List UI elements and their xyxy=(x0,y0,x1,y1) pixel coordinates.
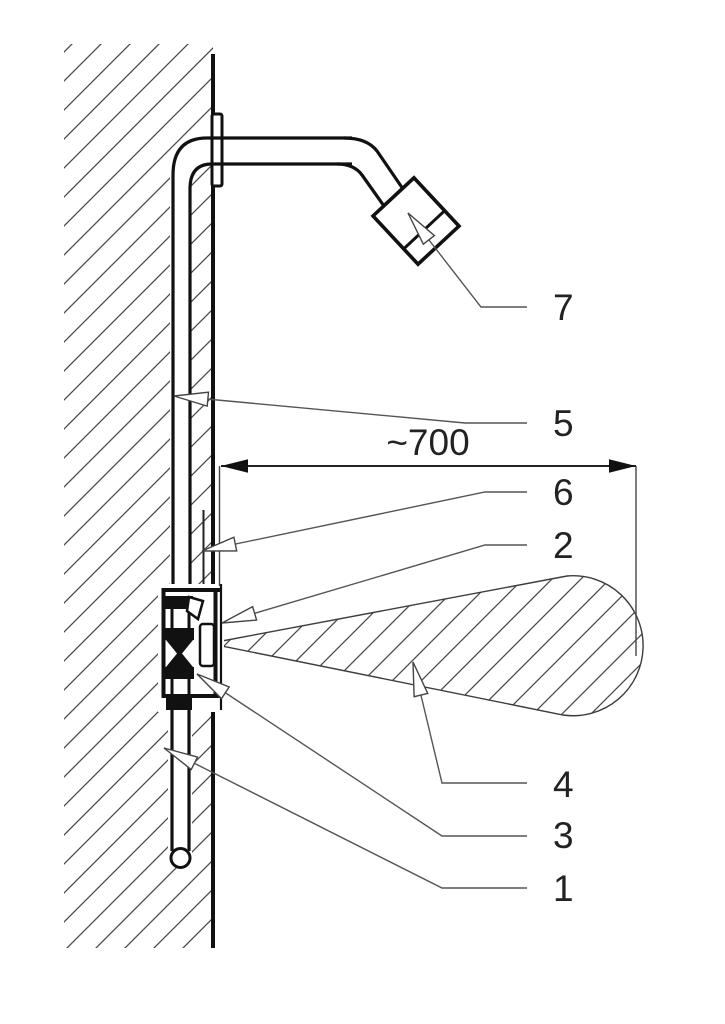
arm-outer-line xyxy=(344,138,403,189)
callout-label-2: 2 xyxy=(553,525,574,566)
callout-label-6: 6 xyxy=(553,472,574,513)
callout-label-7: 7 xyxy=(553,287,574,328)
leader-line-5 xyxy=(174,396,527,423)
arm-inner-line xyxy=(337,164,384,206)
valve-connector-nut-bottom xyxy=(166,698,192,710)
supply-pipe-end-cap xyxy=(171,849,190,868)
callout-label-3: 3 xyxy=(553,815,574,856)
callout-label-4: 4 xyxy=(553,764,574,805)
valve-assembly xyxy=(158,584,224,712)
callout-label-1: 1 xyxy=(553,868,574,909)
drawing-page: ~700 7 5 6 2 4 3 1 xyxy=(0,0,725,1024)
valve-union-nut-low xyxy=(163,667,194,679)
valve-union-nut-mid xyxy=(163,628,194,640)
dimension-text: ~700 xyxy=(386,422,469,463)
shower-installation-diagram: ~700 7 5 6 2 4 3 1 xyxy=(0,0,725,1024)
callout-label-5: 5 xyxy=(553,403,574,444)
leader-line-6 xyxy=(202,492,527,551)
escutcheon-flange xyxy=(212,114,222,186)
valve-recess-box xyxy=(200,624,214,666)
dimension-arrow-left xyxy=(221,459,248,473)
spray-pattern xyxy=(222,576,643,716)
leader-arrow-2 xyxy=(220,607,257,630)
leader-line-1 xyxy=(164,748,527,888)
dimension-arrow-right xyxy=(609,459,636,473)
